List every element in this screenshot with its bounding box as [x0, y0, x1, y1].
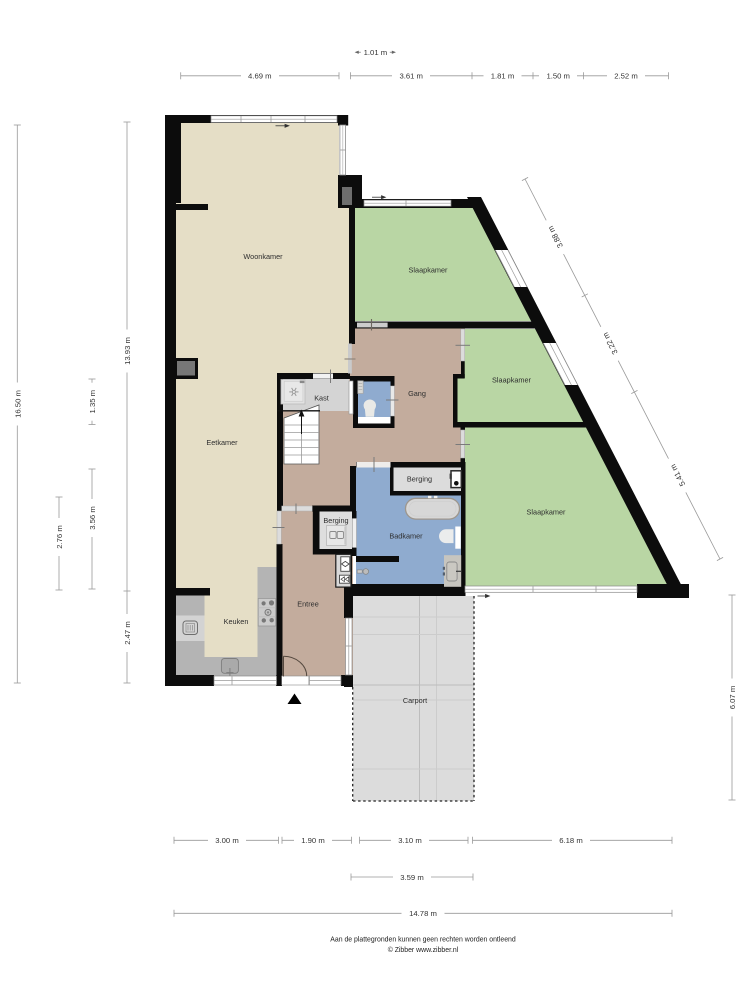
svg-text:3.10 m: 3.10 m	[398, 836, 422, 845]
svg-text:4.69 m: 4.69 m	[248, 72, 272, 81]
svg-text:Eetkamer: Eetkamer	[206, 438, 238, 447]
svg-text:1.35 m: 1.35 m	[88, 390, 97, 414]
svg-text:3.59 m: 3.59 m	[400, 873, 424, 882]
svg-text:Entree: Entree	[297, 599, 319, 608]
svg-text:2.52 m: 2.52 m	[614, 72, 638, 81]
svg-text:Slaapkamer: Slaapkamer	[409, 266, 449, 275]
svg-text:Kast: Kast	[314, 394, 329, 403]
svg-text:3.61 m: 3.61 m	[399, 72, 423, 81]
svg-text:Gang: Gang	[408, 389, 426, 398]
svg-text:6.18 m: 6.18 m	[559, 836, 583, 845]
svg-text:1.81 m: 1.81 m	[491, 72, 515, 81]
svg-text:Keuken: Keuken	[224, 617, 249, 626]
svg-text:13.93 m: 13.93 m	[123, 337, 132, 365]
svg-text:Slaapkamer: Slaapkamer	[527, 508, 567, 517]
svg-text:Berging: Berging	[407, 474, 432, 483]
svg-text:Berging: Berging	[323, 516, 348, 525]
svg-text:Slaapkamer: Slaapkamer	[492, 376, 532, 385]
svg-text:Aan de plattegronden kunnen ge: Aan de plattegronden kunnen geen rechten…	[330, 937, 516, 944]
svg-text:2.76 m: 2.76 m	[55, 525, 64, 549]
svg-text:1.01 m: 1.01 m	[364, 48, 388, 57]
svg-text:Badkamer: Badkamer	[389, 532, 423, 541]
svg-text:Woonkamer: Woonkamer	[243, 252, 283, 261]
svg-text:Carport: Carport	[403, 696, 427, 705]
svg-text:1.90 m: 1.90 m	[301, 836, 325, 845]
svg-text:3.00 m: 3.00 m	[215, 836, 239, 845]
svg-text:2.47 m: 2.47 m	[123, 621, 132, 645]
svg-text:© Zibber www.zibber.nl: © Zibber www.zibber.nl	[388, 946, 459, 954]
svg-text:6.07 m: 6.07 m	[728, 686, 737, 710]
svg-text:3.56 m: 3.56 m	[88, 506, 97, 530]
svg-text:16.50 m: 16.50 m	[14, 390, 23, 418]
svg-text:14.78 m: 14.78 m	[409, 909, 437, 918]
svg-text:1.50 m: 1.50 m	[546, 72, 570, 81]
